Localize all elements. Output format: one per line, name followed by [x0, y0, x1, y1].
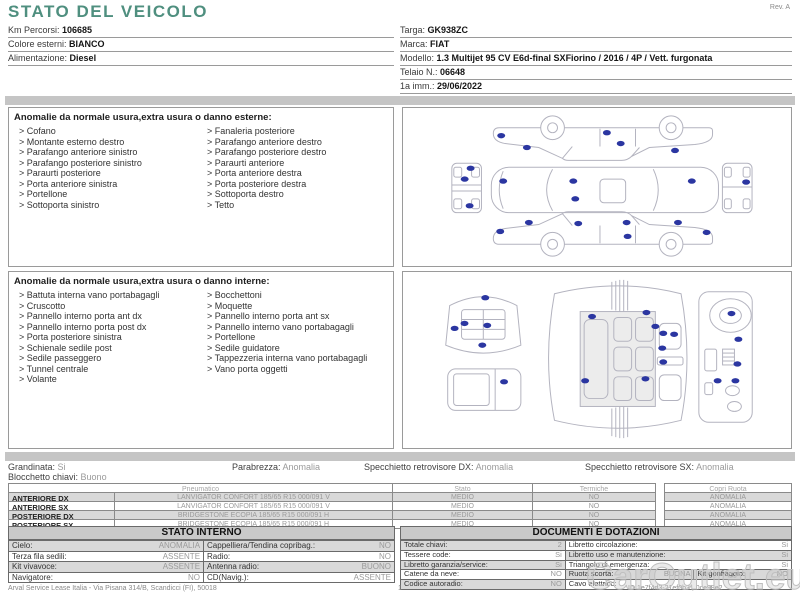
- tyre-description: LANVIGATOR CONFORT 185/65 R15 000/091 V: [115, 502, 393, 511]
- summary-value: Anomalia: [283, 462, 321, 472]
- stato-interno-title: STATO INTERNO: [9, 527, 394, 540]
- info-label: Km Percorsi:: [8, 25, 62, 35]
- field-label: Cielo:: [12, 541, 32, 551]
- anomaly-item: > Parafango posteriore destro: [201, 147, 389, 158]
- interior-anomalies-column-right: > Bocchettoni> Moquette> Pannello intern…: [201, 290, 389, 385]
- field-label: Tessere code:: [404, 551, 451, 560]
- anomaly-item: > Sedile guidatore: [201, 343, 389, 354]
- header-termiche: Termiche: [533, 483, 656, 493]
- vehicle-info-row: Telaio N.: 06648: [400, 66, 792, 80]
- label-value-pair: CD(Navig.):ASSENTE: [203, 573, 394, 583]
- damage-dot: [674, 220, 682, 225]
- tyre-copri-ruota: ANOMALIA: [664, 511, 792, 520]
- anomaly-item: > Pannello interno vano portabagagli: [201, 322, 389, 333]
- label-value-pair: Ruota scorta:BUONA: [565, 570, 694, 579]
- damage-dot: [651, 324, 659, 329]
- label-value-pair: Kit vivavoce:ASSENTE: [9, 562, 203, 572]
- damage-dot: [574, 221, 582, 226]
- cabin-view: [549, 280, 687, 438]
- damage-dot: [581, 378, 589, 383]
- separator-bar-top: [5, 96, 795, 105]
- damage-dot: [617, 141, 625, 146]
- documenti-dotazioni-table: DOCUMENTI E DOTAZIONI Totale chiavi:2Lib…: [400, 526, 792, 590]
- car-side-view-top: [493, 116, 712, 160]
- car-top-view: [491, 167, 718, 212]
- field-label: Libretto garanzia/service:: [404, 561, 488, 570]
- anomaly-item: > Sottoporta sinistro: [13, 200, 201, 211]
- anomaly-item: > Battuta interna vano portabagagli: [13, 290, 201, 301]
- label-value-pair: Triangolo di emergenza:Si: [565, 561, 791, 570]
- damage-dot: [497, 133, 505, 138]
- field-label: Cappelliera/Tendina copribag.:: [207, 541, 315, 551]
- tyre-stato: MEDIO: [393, 493, 533, 502]
- anomaly-item: > Pannello interno porta ant sx: [201, 311, 389, 322]
- info-label: Targa:: [400, 25, 428, 35]
- damage-dot: [451, 326, 459, 331]
- footer-company: Arval Service Lease Italia - Via Pisana …: [8, 585, 217, 592]
- damage-dot: [588, 314, 596, 319]
- damage-dot: [714, 378, 722, 383]
- summary-item: Specchietto retrovisore DX: Anomalia: [364, 462, 513, 472]
- summary-item: Parabrezza: Anomalia: [232, 462, 320, 472]
- tyre-termiche: NO: [533, 502, 656, 511]
- field-value: ASSENTE: [354, 573, 391, 583]
- footer-page-number: 1: [398, 585, 402, 592]
- table-row: Cielo:ANOMALIACappelliera/Tendina coprib…: [9, 540, 394, 551]
- table-row: Navigatore:NOCD(Navig.):ASSENTE: [9, 572, 394, 583]
- field-value: Si: [781, 541, 788, 550]
- label-value-pair: Tessere code:Si: [401, 551, 565, 560]
- field-label: Cavo elettrico:: [569, 580, 617, 589]
- car-side-view-bottom: [493, 212, 712, 256]
- anomaly-item: > Parafango posteriore sinistro: [13, 158, 201, 169]
- anomaly-item: > Porta anteriore sinistra: [13, 179, 201, 190]
- vehicle-info-row: Targa: GK938ZC: [400, 24, 792, 38]
- dashboard-view: [699, 292, 752, 423]
- tyre-copri-ruota: ANOMALIA: [664, 502, 792, 511]
- tyre-position: POSTERIORE DX: [8, 511, 115, 520]
- tyre-stato: MEDIO: [393, 511, 533, 520]
- label-value-pair: Cielo:ANOMALIA: [9, 541, 203, 551]
- tyre-termiche: NO: [533, 511, 656, 520]
- interior-damage-diagram: [402, 271, 792, 449]
- anomaly-item: > Moquette: [201, 301, 389, 312]
- field-value: BUONA: [664, 570, 691, 579]
- table-row: Codice autoradio:NOCavo elettrico:: [401, 579, 791, 589]
- damage-dot: [603, 130, 611, 135]
- damage-dot: [728, 311, 736, 316]
- info-value: 1.3 Multijet 95 CV E6d-final SXFiorino /…: [437, 53, 713, 63]
- anomaly-item: > Volante: [13, 374, 201, 385]
- field-value: BUONO: [362, 562, 391, 572]
- field-label: Ruota scorta:: [569, 570, 614, 579]
- exterior-damage-diagram: [402, 107, 792, 267]
- anomaly-item: > Vano porta oggetti: [201, 364, 389, 375]
- damage-dot: [569, 178, 577, 183]
- anomaly-item: > Tetto: [201, 200, 389, 211]
- damage-dot: [500, 379, 508, 384]
- label-value-pair: Codice autoradio:NO: [401, 580, 565, 589]
- summary-label: Grandinata:: [8, 462, 58, 472]
- field-value: Si: [555, 551, 562, 560]
- info-label: 1a imm.:: [400, 81, 437, 91]
- tyre-stato: MEDIO: [393, 502, 533, 511]
- anomaly-item: > Porta posteriore sinistra: [13, 332, 201, 343]
- anomaly-item: > Pannello interno porta post dx: [13, 322, 201, 333]
- anomaly-item: > Fanaleria posteriore: [201, 126, 389, 137]
- stato-interno-table: STATO INTERNO Cielo:ANOMALIACappelliera/…: [8, 526, 395, 583]
- tyre-row: ANTERIORE DXLANVIGATOR CONFORT 185/65 R1…: [8, 493, 792, 502]
- damage-dot: [461, 176, 469, 181]
- anomaly-item: > Paraurti anteriore: [201, 158, 389, 169]
- info-value: Diesel: [70, 53, 97, 63]
- revision-label: Rev. A: [770, 4, 790, 11]
- info-value: 06648: [440, 67, 465, 77]
- damage-dot: [525, 220, 533, 225]
- info-value: BIANCO: [69, 39, 105, 49]
- damage-dot: [670, 332, 678, 337]
- anomaly-item: > Tunnel centrale: [13, 364, 201, 375]
- vehicle-status-report: STATO DEL VEICOLO Rev. A Km Percorsi: 10…: [0, 0, 800, 600]
- damage-dot: [466, 203, 474, 208]
- damage-dot: [642, 310, 650, 315]
- field-value: 2: [558, 541, 562, 550]
- damage-dot: [671, 148, 679, 153]
- exterior-anomalies-title: Anomalie da normale usura,extra usura o …: [9, 108, 393, 125]
- header-gap: [656, 483, 664, 493]
- field-label: Libretto circolazione:: [569, 541, 638, 550]
- summary-value: Si: [58, 462, 66, 472]
- tyre-gap: [656, 511, 664, 520]
- anomaly-item: > Parafango anteriore destro: [201, 137, 389, 148]
- summary-label: Blocchetto chiavi:: [8, 472, 81, 482]
- vehicle-info-row: Modello: 1.3 Multijet 95 CV E6d-final SX…: [400, 52, 792, 66]
- exterior-anomalies-box: Anomalie da normale usura,extra usura o …: [8, 107, 394, 267]
- anomaly-item: > Sottoporta destro: [201, 189, 389, 200]
- label-value-pair: Libretto garanzia/service:Si: [401, 561, 565, 570]
- summary-value: Anomalia: [696, 462, 734, 472]
- field-label: CD(Navig.):: [207, 573, 249, 583]
- anomaly-item: > Cruscotto: [13, 301, 201, 312]
- label-value-pair: Kit gonfiaggio:NO: [693, 570, 791, 579]
- info-value: 29/06/2022: [437, 81, 482, 91]
- vehicle-info-right: Targa: GK938ZCMarca: FIATModello: 1.3 Mu…: [400, 24, 792, 94]
- interior-anomalies-title: Anomalie da normale usura,extra usura o …: [9, 272, 393, 289]
- damage-dot: [499, 178, 507, 183]
- damage-dot: [641, 376, 649, 381]
- label-value-pair: Cappelliera/Tendina copribag.:NO: [203, 541, 394, 551]
- summary-label: Specchietto retrovisore SX:: [585, 462, 696, 472]
- tyre-row: ANTERIORE SXLANVIGATOR CONFORT 185/65 R1…: [8, 502, 792, 511]
- damage-dot: [734, 337, 742, 342]
- anomaly-item: > Portellone: [13, 189, 201, 200]
- anomaly-item: > Montante esterno destro: [13, 137, 201, 148]
- summary-item: Grandinata: Si: [8, 462, 66, 472]
- interior-anomalies-column-left: > Battuta interna vano portabagagli> Cru…: [13, 290, 201, 385]
- field-label: Libretto uso e manutenzione:: [569, 551, 666, 560]
- tailgate-view: [448, 369, 521, 411]
- page-title: STATO DEL VEICOLO: [8, 2, 208, 22]
- vehicle-info-row: 1a imm.: 29/06/2022: [400, 80, 792, 94]
- tyres-table: Pneumatico Stato Termiche Copri Ruota AN…: [8, 483, 792, 529]
- damage-dot: [733, 361, 741, 366]
- field-label: Kit gonfiaggio:: [697, 570, 745, 579]
- table-row: Libretto garanzia/service:SiTriangolo di…: [401, 560, 791, 570]
- label-value-pair: Libretto uso e manutenzione:Si: [565, 551, 791, 560]
- summary-value: Anomalia: [476, 462, 514, 472]
- tyres-table-header: Pneumatico Stato Termiche Copri Ruota: [8, 483, 792, 493]
- header-copri-ruota: Copri Ruota: [664, 483, 792, 493]
- damage-dot: [623, 220, 631, 225]
- info-label: Alimentazione:: [8, 53, 70, 63]
- anomaly-item: > Tappezzeria interna vano portabagagli: [201, 353, 389, 364]
- field-value: ANOMALIA: [159, 541, 200, 551]
- tyre-description: LANVIGATOR CONFORT 185/65 R15 000/091 V: [115, 493, 393, 502]
- table-row: Catene da neve:NORuota scorta:BUONAKit g…: [401, 569, 791, 579]
- summary-label: Parabrezza:: [232, 462, 283, 472]
- label-value-pair: Antenna radio:BUONO: [203, 562, 394, 572]
- field-value: NO: [777, 570, 788, 579]
- field-value: ASSENTE: [163, 562, 200, 572]
- anomaly-item: > Schienale sedile post: [13, 343, 201, 354]
- vehicle-info-row: Marca: FIAT: [400, 38, 792, 52]
- field-label: Antenna radio:: [207, 562, 259, 572]
- field-value: NO: [551, 580, 562, 589]
- damage-dot: [659, 331, 667, 336]
- damage-dot: [481, 295, 489, 300]
- info-value: 106685: [62, 25, 92, 35]
- field-label: Totale chiavi:: [404, 541, 447, 550]
- interior-anomalies-box: Anomalie da normale usura,extra usura o …: [8, 271, 394, 449]
- info-value: GK938ZC: [428, 25, 469, 35]
- info-label: Modello:: [400, 53, 437, 63]
- field-label: Kit vivavoce:: [12, 562, 57, 572]
- table-row: Tessere code:SiLibretto uso e manutenzio…: [401, 550, 791, 560]
- anomaly-item: > Porta anteriore destra: [201, 168, 389, 179]
- tyre-position: ANTERIORE DX: [8, 493, 115, 502]
- info-label: Marca:: [400, 39, 430, 49]
- field-label: Triangolo di emergenza:: [569, 561, 650, 570]
- exterior-anomalies-column-right: > Fanaleria posteriore> Parafango anteri…: [201, 126, 389, 210]
- label-value-pair: Radio:NO: [203, 552, 394, 562]
- anomaly-item: > Cofano: [13, 126, 201, 137]
- label-value-pair: Libretto circolazione:Si: [565, 541, 791, 550]
- damage-dot: [478, 342, 486, 347]
- label-value-pair: Catene da neve:NO: [401, 570, 565, 579]
- field-label: Terza fila sedili:: [12, 552, 67, 562]
- damage-dot: [731, 378, 739, 383]
- tyre-description: BRIDGESTONE ECOPIA 185/65 R15 000/091 H: [115, 511, 393, 520]
- footer-document-id: ID 1e7f4d3-21ef0b3 , 0ce98e2: [628, 585, 723, 592]
- header-pneumatico: Pneumatico: [8, 483, 393, 493]
- label-value-pair: Totale chiavi:2: [401, 541, 565, 550]
- info-value: FIAT: [430, 39, 449, 49]
- tyre-position: ANTERIORE SX: [8, 502, 115, 511]
- separator-bar-bottom: [5, 452, 795, 461]
- anomaly-item: > Pannello interno porta ant dx: [13, 311, 201, 322]
- anomaly-item: > Sedile passeggero: [13, 353, 201, 364]
- label-value-pair: Terza fila sedili:ASSENTE: [9, 552, 203, 562]
- exterior-damage-dots: [461, 130, 750, 239]
- field-label: Catene da neve:: [404, 570, 459, 579]
- vehicle-info-row: Colore esterni: BIANCO: [8, 38, 394, 52]
- anomaly-item: > Porta posteriore destra: [201, 179, 389, 190]
- vehicle-info-row: Km Percorsi: 106685: [8, 24, 394, 38]
- field-value: NO: [379, 541, 391, 551]
- field-value: Si: [555, 561, 562, 570]
- field-value: Si: [781, 561, 788, 570]
- summary-value: Buono: [81, 472, 107, 482]
- documenti-dotazioni-title: DOCUMENTI E DOTAZIONI: [401, 527, 791, 540]
- anomaly-item: > Bocchettoni: [201, 290, 389, 301]
- damage-dot: [624, 234, 632, 239]
- field-value: NO: [379, 552, 391, 562]
- damage-dot: [461, 321, 469, 326]
- info-label: Telaio N.:: [400, 67, 440, 77]
- damage-dot: [658, 345, 666, 350]
- car-rear-view: [722, 163, 752, 212]
- anomaly-item: > Portellone: [201, 332, 389, 343]
- damage-dot: [571, 196, 579, 201]
- table-row: Totale chiavi:2Libretto circolazione:Si: [401, 540, 791, 550]
- vehicle-info-row: Alimentazione: Diesel: [8, 52, 394, 66]
- field-value: ASSENTE: [163, 552, 200, 562]
- damage-dot: [496, 229, 504, 234]
- anomaly-item: > Parafango anteriore sinistro: [13, 147, 201, 158]
- field-label: Codice autoradio:: [404, 580, 463, 589]
- anomaly-item: > Paraurti posteriore: [13, 168, 201, 179]
- vehicle-info-left: Km Percorsi: 106685Colore esterni: BIANC…: [8, 24, 394, 66]
- field-value: NO: [551, 570, 562, 579]
- summary-item: Blocchetto chiavi: Buono: [8, 472, 107, 482]
- damage-dot: [742, 179, 750, 184]
- tyre-gap: [656, 502, 664, 511]
- damage-dot: [523, 145, 531, 150]
- summary-item: Specchietto retrovisore SX: Anomalia: [585, 462, 734, 472]
- field-label: Radio:: [207, 552, 230, 562]
- field-value: Si: [781, 551, 788, 560]
- info-label: Colore esterni:: [8, 39, 69, 49]
- damage-dot: [659, 359, 667, 364]
- damage-dot: [703, 230, 711, 235]
- header-stato: Stato: [393, 483, 533, 493]
- car-exterior-diagram: [403, 108, 791, 266]
- tyre-copri-ruota: ANOMALIA: [664, 493, 792, 502]
- field-label: Navigatore:: [12, 573, 53, 583]
- damage-dot: [688, 178, 696, 183]
- label-value-pair: Navigatore:NO: [9, 573, 203, 583]
- tyre-termiche: NO: [533, 493, 656, 502]
- tyre-row: POSTERIORE DXBRIDGESTONE ECOPIA 185/65 R…: [8, 511, 792, 520]
- table-row: Kit vivavoce:ASSENTEAntenna radio:BUONO: [9, 561, 394, 572]
- field-value: NO: [188, 573, 200, 583]
- exterior-anomalies-column-left: > Cofano> Montante esterno destro> Paraf…: [13, 126, 201, 210]
- summary-label: Specchietto retrovisore DX:: [364, 462, 476, 472]
- tyre-gap: [656, 493, 664, 502]
- car-interior-diagram: [403, 272, 791, 448]
- damage-dot: [483, 323, 491, 328]
- damage-dot: [467, 166, 475, 171]
- table-row: Terza fila sedili:ASSENTERadio:NO: [9, 551, 394, 562]
